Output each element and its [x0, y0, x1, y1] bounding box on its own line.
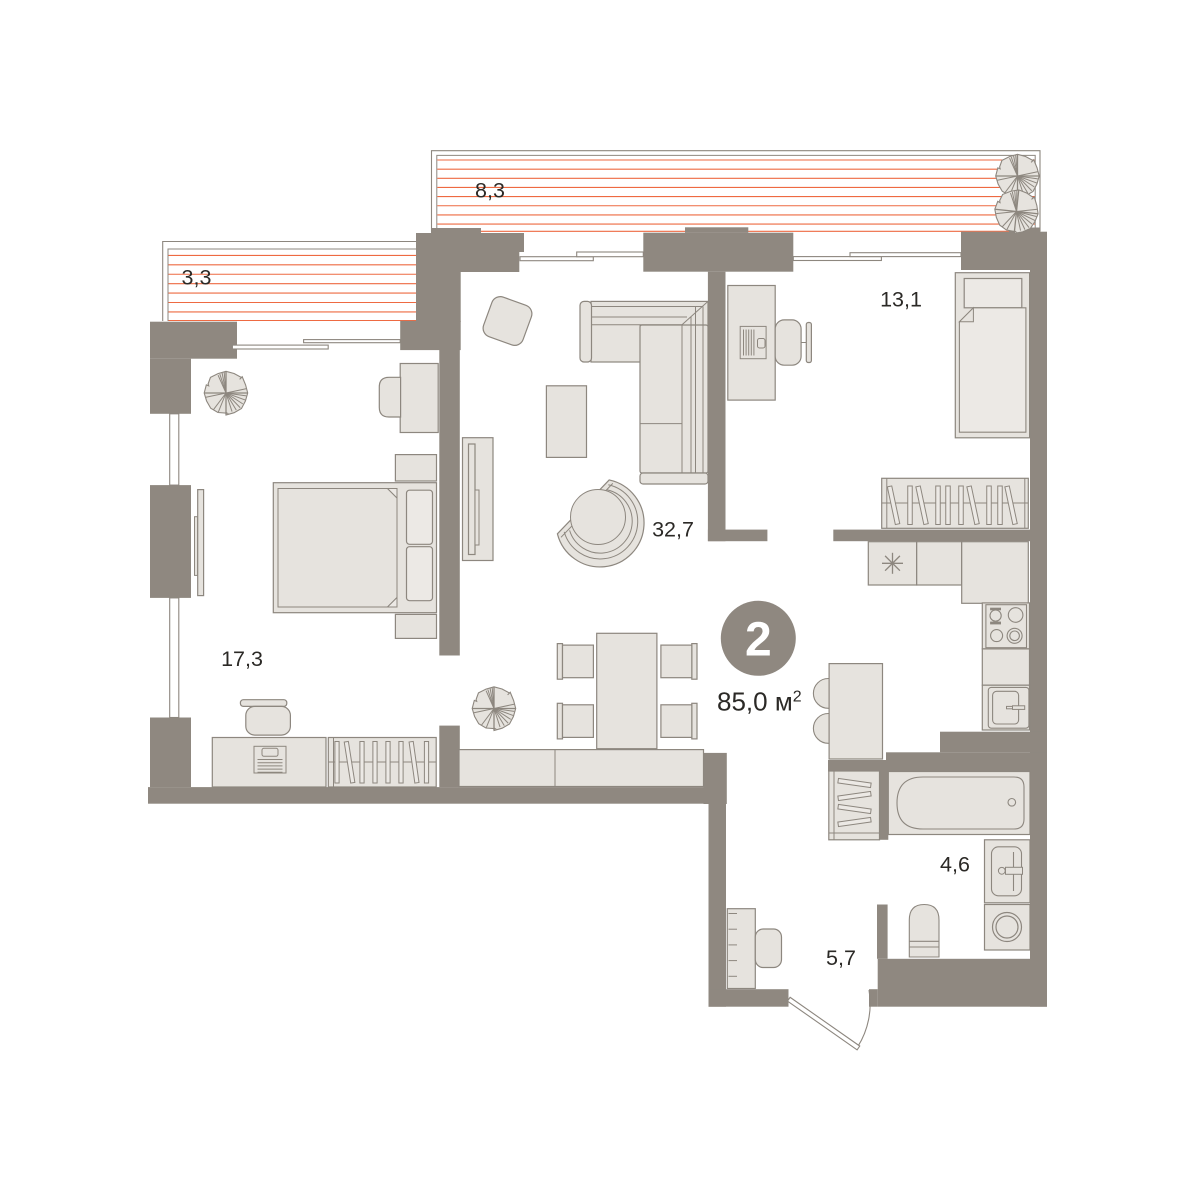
- svg-text:85,0 м2: 85,0 м2: [717, 687, 802, 717]
- svg-text:8,3: 8,3: [475, 179, 505, 203]
- svg-text:13,1: 13,1: [880, 288, 922, 312]
- svg-text:2: 2: [745, 614, 772, 667]
- svg-text:32,7: 32,7: [652, 518, 694, 542]
- svg-text:3,3: 3,3: [182, 266, 212, 290]
- svg-text:4,6: 4,6: [940, 853, 970, 877]
- svg-text:5,7: 5,7: [826, 946, 856, 970]
- svg-text:17,3: 17,3: [221, 647, 263, 671]
